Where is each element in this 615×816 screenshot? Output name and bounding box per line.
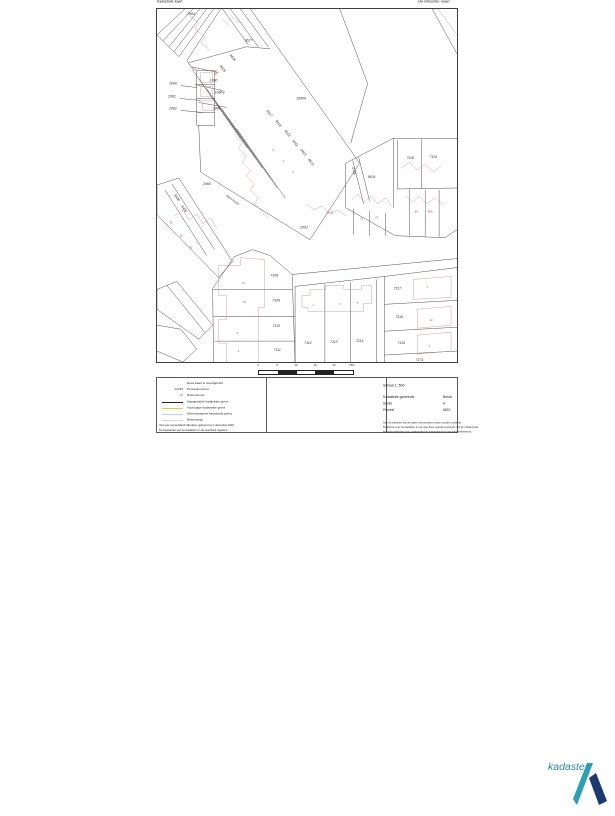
parcel-number-label: 6796 xyxy=(351,167,357,176)
parcel-boundary-line xyxy=(236,128,285,198)
scalebar-segment xyxy=(315,371,334,374)
parcel-boundary-line xyxy=(179,9,214,57)
parcel-number-label: 10803 xyxy=(215,90,225,94)
parcel-boundary-line xyxy=(157,281,213,339)
scalebar-tick-label: 15 xyxy=(313,364,316,367)
building-outline xyxy=(175,210,217,228)
building-outline xyxy=(417,306,451,328)
house-number-label: 12 xyxy=(242,281,246,285)
parcel-boundary-line xyxy=(214,98,263,168)
house-number-label: 3 xyxy=(339,302,341,306)
parcel-number-label: 7110 xyxy=(272,324,280,328)
scalebar-segment xyxy=(334,371,353,374)
house-number-label: 9-11 xyxy=(214,70,218,76)
street-name-label: Meerstraat xyxy=(225,194,240,206)
parcel-number-label: 9627 xyxy=(245,39,254,43)
house-number-label: 19-21 xyxy=(326,211,334,215)
parcel-boundary-line xyxy=(384,268,457,277)
parcel-boundary-line xyxy=(340,9,368,143)
house-number-label: 5 xyxy=(357,301,359,305)
house-number-label: 4 xyxy=(426,285,428,289)
scalebar-tick-label: 0 xyxy=(257,364,259,367)
legend-item-label: Administratieve kadastrale grens xyxy=(187,412,232,416)
disclaimer-line: eigendomsrechten voor, waaronder het aut… xyxy=(383,431,499,434)
parcel-boundary-line xyxy=(157,35,179,57)
parcel-number-label: 7109 xyxy=(272,298,280,302)
building-outline xyxy=(189,15,211,51)
building-outline xyxy=(405,196,443,205)
parcel-number-label: 1889 xyxy=(213,106,221,110)
parcel-boundary-line xyxy=(359,157,370,201)
parcel-boundary-line xyxy=(180,98,201,100)
reference-label: Uw referentie: maan xyxy=(418,0,518,8)
legend-item-label: Vastgestelde kadastrale grens xyxy=(187,400,228,404)
parcel-number-label: 7116 xyxy=(396,315,404,319)
parcel-number-label: 2081 xyxy=(167,94,176,98)
parcel-number-label: 9625 xyxy=(219,64,227,73)
certification-line: De bewaarder van het kadaster en de open… xyxy=(159,429,266,432)
legend-sample: 12345 xyxy=(160,388,183,392)
parcel-boundary-line xyxy=(181,86,197,88)
house-number-label: 21 xyxy=(360,217,364,221)
house-number-label: 2 xyxy=(292,170,294,174)
parcel-info: Schaal 1: 500 Kadastrale gemeenteBredaSe… xyxy=(381,380,500,434)
house-number-label: 6 xyxy=(238,349,240,353)
parcel-boundary-line xyxy=(187,9,221,71)
parcel-boundary-line xyxy=(213,250,292,289)
cadastral-map: 2084962796269625189010803188910804208020… xyxy=(156,8,458,363)
parcel-number-label: 7112 xyxy=(304,341,312,345)
legend-item-label: Bebouwing xyxy=(187,418,202,422)
parcel-number-label: 10804 xyxy=(296,96,306,100)
parcel-boundary-line xyxy=(229,118,278,188)
map-canvas: 2084962796269625189010803188910804208020… xyxy=(157,9,457,362)
parcel-number-label: 9405 xyxy=(180,205,188,214)
building-outline xyxy=(438,9,457,35)
legend-item: Vastgestelde kadastrale grens xyxy=(160,400,266,406)
legend-line-sample xyxy=(162,402,183,403)
page-title: Kadastrale kaart xyxy=(157,0,307,8)
certification-line: Voor een eensluidend uittreksel, gelever… xyxy=(159,424,266,427)
scalebar-tick-label: 5 xyxy=(276,364,278,367)
parcel-boundary-line xyxy=(310,163,360,240)
parcel-number-label: 7118 xyxy=(407,156,415,160)
parcel-number-label: 7115 xyxy=(398,341,406,345)
legend-item-label: Voorlopige kadastrale grens xyxy=(187,406,225,410)
house-number-label: 1 xyxy=(312,303,314,307)
info-row-value: 8622 xyxy=(443,409,450,413)
house-number-label: 23 xyxy=(375,216,379,220)
parcel-boundary-line xyxy=(201,172,310,240)
parcel-boundary-line xyxy=(172,184,215,250)
parcel-number-label: 3453 xyxy=(299,148,307,157)
parcel-number-label: 1890 xyxy=(210,79,218,83)
info-row-label: Kadastrale gemeente xyxy=(383,396,414,400)
scalebar xyxy=(258,370,354,375)
parcel-boundary-line xyxy=(157,325,197,362)
house-number-label: 4 xyxy=(282,159,284,163)
parcel-boundary-line xyxy=(397,188,457,189)
scalebar-segment xyxy=(259,371,278,374)
house-number-label: 89 xyxy=(415,210,419,214)
legend: Deze kaart is noordgericht12345Perceelnu… xyxy=(159,379,267,433)
parcel-number-label: 8622 xyxy=(307,158,315,167)
info-row: SectieH xyxy=(383,402,498,406)
parcel-boundary-line xyxy=(384,300,457,304)
legend-item-label: Deze kaart is noordgericht xyxy=(187,382,223,386)
parcel-boundary-line xyxy=(346,138,457,163)
legend-line-sample xyxy=(162,408,183,409)
info-row-value: H xyxy=(443,402,445,406)
parcel-number-label: 2084 xyxy=(186,12,195,16)
legend-item: Deze kaart is noordgericht xyxy=(160,382,266,388)
legend-line-sample xyxy=(162,414,183,415)
kadaster-logo-text: kadaster xyxy=(548,761,589,773)
scalebar-segment xyxy=(278,371,297,374)
legend-item: Voorlopige kadastrale grens xyxy=(160,406,266,412)
parcel-number-label: 2086 xyxy=(202,182,211,186)
parcel-number-label: 4618 xyxy=(274,119,282,128)
disclaimer-line: Aan dit uittreksel kunnen geen betrouwba… xyxy=(383,422,499,425)
building-outline xyxy=(352,194,392,206)
scalebar-tick-label: 10 xyxy=(294,364,297,367)
parcel-boundary-line xyxy=(292,274,295,362)
building-outline xyxy=(413,276,451,299)
house-number-label: 6 xyxy=(272,148,274,152)
building-outline xyxy=(417,332,451,354)
kadaster-logo-mark: kadaster xyxy=(543,755,615,811)
legend-sample: 25 xyxy=(160,394,183,398)
building-outline xyxy=(234,134,268,218)
parcel-number-label: 3452 xyxy=(291,139,299,148)
parcel-number-label: 7117 xyxy=(394,286,403,290)
legend-line-sample xyxy=(162,420,183,421)
parcel-number-label: 4617 xyxy=(265,109,274,118)
parcel-number-label: 7114 xyxy=(356,339,364,343)
building-outline xyxy=(302,285,372,311)
disclaimer-line: De Dienst voor het kadaster en de openba… xyxy=(383,426,499,429)
scalebar-tick-label: 20 xyxy=(332,364,335,367)
info-row-label: Sectie xyxy=(383,402,392,406)
legend-band: Deze kaart is noordgericht12345Perceelnu… xyxy=(156,377,458,433)
parcel-boundary-line xyxy=(181,110,203,112)
building-outline xyxy=(240,258,264,362)
house-number-label: 8 xyxy=(237,331,239,335)
scalebar-segment xyxy=(297,371,316,374)
house-number-label: 60 xyxy=(169,220,174,225)
house-number-label: 10 xyxy=(243,300,247,304)
house-number-label: 89A xyxy=(428,210,433,214)
parcel-number-label: 7174 xyxy=(415,358,423,362)
house-number-label: 12 xyxy=(430,318,434,322)
legend-item: 25Huisnummer xyxy=(160,394,266,400)
legend-item-label: Perceelnummer xyxy=(187,388,209,392)
scalebar-tick-label: 25m xyxy=(349,364,354,367)
parcel-number-label: 9624 xyxy=(368,175,376,179)
house-number-label: 2 xyxy=(428,344,430,348)
parcel-number-label: 2082 xyxy=(168,106,177,110)
parcel-number-label: 2091 xyxy=(299,226,308,230)
parcel-boundary-line xyxy=(195,85,223,91)
kadaster-logo: kadaster xyxy=(543,755,615,811)
parcel-boundary-line xyxy=(292,259,457,275)
parcel-number-label: 7108 xyxy=(270,273,278,277)
parcel-boundary-line xyxy=(199,125,201,172)
info-row: Kadastrale gemeenteBreda xyxy=(383,396,498,400)
parcel-number-label: 7119 xyxy=(429,155,437,159)
parcel-number-label: 4619 xyxy=(283,129,291,138)
parcel-boundary-line xyxy=(250,9,359,163)
parcel-number-label: 2080 xyxy=(168,81,177,85)
parcel-boundary-line xyxy=(157,178,232,277)
info-row-value: Breda xyxy=(443,396,452,400)
building-outline xyxy=(223,19,231,27)
parcel-boundary-line xyxy=(169,9,200,47)
legend-item: Administratieve kadastrale grens xyxy=(160,412,266,418)
parcel-number-label: 9626 xyxy=(229,53,237,62)
info-row: Perceel8622 xyxy=(383,409,498,413)
legend-item: 12345Perceelnummer xyxy=(160,388,266,394)
building-outline xyxy=(219,258,241,362)
parcel-number-label: 9406 xyxy=(173,194,181,203)
logo-navy-shape xyxy=(589,773,607,805)
info-row-label: Perceel xyxy=(383,409,394,413)
legend-item-label: Huisnummer xyxy=(187,394,205,398)
parcel-boundary-line xyxy=(432,9,457,54)
scale-label: Schaal 1: 500 xyxy=(383,384,498,388)
parcel-number-label: 7111 xyxy=(274,348,281,352)
parcel-boundary-line xyxy=(295,276,384,286)
parcel-number-label: 7113 xyxy=(330,340,338,344)
parcel-boundary-line xyxy=(199,79,248,149)
